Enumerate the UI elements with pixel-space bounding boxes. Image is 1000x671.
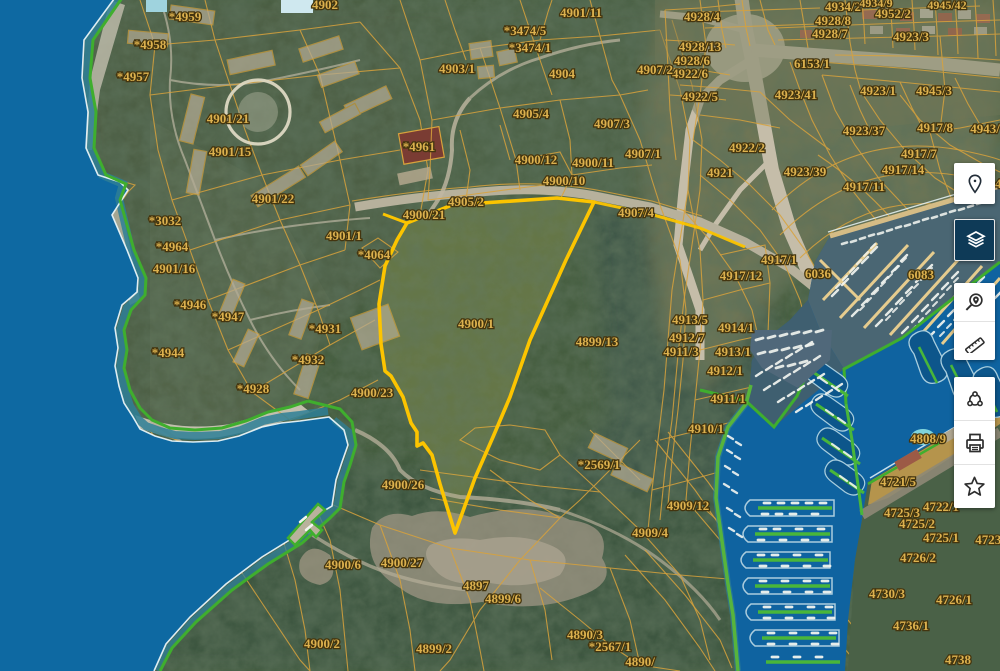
svg-text:4900/2: 4900/2 (304, 636, 340, 651)
svg-text:4730/3: 4730/3 (869, 586, 906, 601)
svg-text:4917/11: 4917/11 (843, 179, 885, 194)
svg-text:4913/5: 4913/5 (672, 312, 709, 327)
svg-text:4914/1: 4914/1 (718, 320, 754, 335)
svg-text:4913/1: 4913/1 (715, 344, 751, 359)
svg-text:4923/3: 4923/3 (893, 29, 930, 44)
svg-text:4905/4: 4905/4 (513, 106, 550, 121)
svg-text:4900/12: 4900/12 (515, 152, 558, 167)
svg-text:4900/6: 4900/6 (325, 557, 362, 572)
svg-text:*2567/1: *2567/1 (589, 639, 632, 654)
svg-text:*4928: *4928 (237, 381, 270, 396)
svg-text:4911/3: 4911/3 (663, 344, 699, 359)
svg-text:4923/1: 4923/1 (860, 83, 896, 98)
svg-text:4909/12: 4909/12 (667, 498, 710, 513)
svg-text:4808/9: 4808/9 (910, 431, 947, 446)
svg-text:4917/1: 4917/1 (761, 252, 797, 267)
svg-text:4899/2: 4899/2 (416, 641, 452, 656)
svg-text:4928/13: 4928/13 (679, 39, 722, 54)
svg-text:4923/39: 4923/39 (784, 164, 827, 179)
svg-text:4725/2: 4725/2 (899, 516, 935, 531)
svg-text:4899/13: 4899/13 (576, 334, 619, 349)
svg-text:4899/6: 4899/6 (485, 591, 522, 606)
svg-text:4901/1: 4901/1 (326, 228, 362, 243)
svg-text:4726/1: 4726/1 (936, 592, 972, 607)
svg-text:4738: 4738 (945, 652, 972, 667)
svg-text:6036: 6036 (805, 266, 832, 281)
svg-text:4934/2: 4934/2 (825, 0, 861, 14)
svg-text:4723/: 4723/ (975, 532, 1000, 547)
svg-text:4901/15: 4901/15 (209, 144, 252, 159)
svg-text:4922/5: 4922/5 (682, 89, 719, 104)
svg-text:*4931: *4931 (309, 321, 342, 336)
svg-text:4943/: 4943/ (970, 121, 1000, 136)
svg-text:4928/7: 4928/7 (812, 26, 849, 41)
svg-text:4922/6: 4922/6 (672, 66, 709, 81)
svg-text:4909/4: 4909/4 (632, 525, 669, 540)
svg-text:4901/11: 4901/11 (560, 5, 602, 20)
svg-text:*4947: *4947 (212, 309, 245, 324)
svg-text:4900/21: 4900/21 (403, 207, 446, 222)
svg-text:4900/11: 4900/11 (572, 155, 614, 170)
svg-text:4901/16: 4901/16 (153, 261, 196, 276)
svg-text:6083: 6083 (908, 267, 935, 282)
svg-text:4917/12: 4917/12 (720, 268, 763, 283)
svg-text:*3474/5: *3474/5 (504, 23, 547, 38)
svg-text:4907/1: 4907/1 (625, 146, 661, 161)
svg-text:4900/27: 4900/27 (381, 555, 424, 570)
svg-text:4917/8: 4917/8 (917, 120, 954, 135)
svg-text:*4959: *4959 (169, 9, 202, 24)
svg-text:4907/3: 4907/3 (594, 116, 631, 131)
svg-text:4945/42: 4945/42 (927, 0, 966, 12)
svg-text:4912/7: 4912/7 (669, 330, 706, 345)
svg-text:4903/1: 4903/1 (439, 61, 475, 76)
svg-text:4917/14: 4917/14 (882, 162, 925, 177)
svg-text:*3032: *3032 (149, 213, 182, 228)
svg-text:4911/1: 4911/1 (710, 391, 745, 406)
svg-text:*4944: *4944 (152, 345, 185, 360)
svg-text:4945/3: 4945/3 (916, 83, 953, 98)
svg-text:4721/5: 4721/5 (880, 474, 917, 489)
svg-text:4907/2: 4907/2 (637, 62, 673, 77)
svg-text:4923/41: 4923/41 (775, 87, 818, 102)
svg-text:4907/4: 4907/4 (618, 205, 655, 220)
svg-text:4726/2: 4726/2 (900, 550, 936, 565)
svg-text:4725/1: 4725/1 (923, 530, 959, 545)
svg-text:4921: 4921 (707, 165, 733, 180)
svg-text:4901/22: 4901/22 (252, 191, 295, 206)
svg-text:4952/2: 4952/2 (875, 6, 911, 21)
svg-text:4923/37: 4923/37 (843, 123, 886, 138)
svg-text:4904: 4904 (549, 66, 576, 81)
svg-text:4900/26: 4900/26 (382, 477, 425, 492)
svg-text:4912/1: 4912/1 (707, 363, 743, 378)
svg-text:4917/7: 4917/7 (901, 146, 938, 161)
svg-text:*4064: *4064 (358, 247, 391, 262)
svg-text:4922/2: 4922/2 (729, 140, 765, 155)
svg-text:6153/1: 6153/1 (794, 56, 830, 71)
svg-text:4928/4: 4928/4 (684, 9, 721, 24)
svg-text:*4932: *4932 (292, 352, 325, 367)
svg-text:*2569/1: *2569/1 (578, 457, 621, 472)
svg-text:4901/21: 4901/21 (207, 111, 250, 126)
svg-text:4905/2: 4905/2 (448, 194, 484, 209)
svg-text:*4957: *4957 (117, 69, 150, 84)
svg-text:4900/10: 4900/10 (543, 173, 586, 188)
svg-text:4910/1: 4910/1 (688, 421, 724, 436)
svg-text:*4958: *4958 (134, 37, 167, 52)
svg-text:4900/1: 4900/1 (458, 316, 494, 331)
svg-text:4890/: 4890/ (625, 654, 655, 669)
svg-text:*4946: *4946 (174, 297, 207, 312)
svg-text:*3474/1: *3474/1 (509, 40, 552, 55)
svg-text:4900/23: 4900/23 (351, 385, 394, 400)
svg-text:4736/1: 4736/1 (893, 618, 929, 633)
svg-text:4902: 4902 (312, 0, 338, 12)
svg-text:*4961: *4961 (403, 139, 436, 154)
svg-text:*4964: *4964 (156, 239, 189, 254)
